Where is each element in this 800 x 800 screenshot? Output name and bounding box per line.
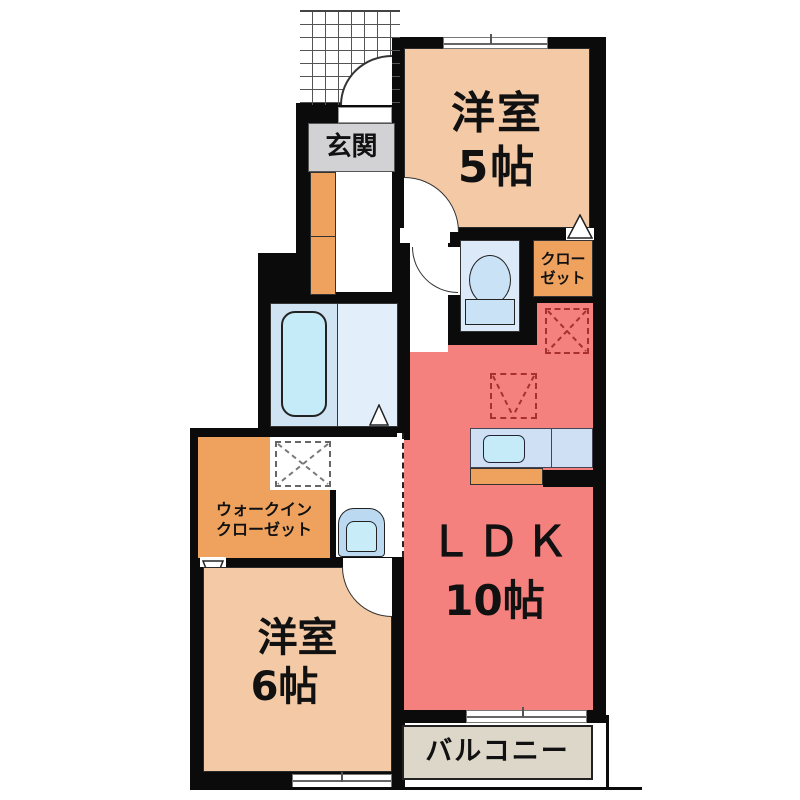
closet-folding-door-icon <box>567 214 593 239</box>
ldk-label: ＬＤＫ 10帖 <box>410 516 593 626</box>
ldk-balcony-window <box>466 710 587 723</box>
toilet-tank <box>465 299 515 325</box>
kitchen-lower-cabinet <box>470 468 543 485</box>
closet-label: クロー ゼット <box>540 250 585 288</box>
room-west6-window <box>292 774 392 788</box>
kitchen-sink-icon <box>483 435 525 463</box>
washing-machine-space <box>275 441 331 487</box>
genkan-label: 玄関 <box>325 132 377 164</box>
ldk-area-west-upper <box>410 352 450 442</box>
toilet-room <box>460 240 520 332</box>
floor-plan: 洋室 5帖 玄関 クロー ゼット ＬＤＫ 10帖 <box>0 0 800 800</box>
genkan-area: 玄関 <box>308 123 395 172</box>
kitchen-counter <box>470 428 593 468</box>
room-west6-label: 洋室 6帖 <box>204 614 391 712</box>
balcony-label: バルコニー <box>425 736 569 769</box>
room-west5-window <box>443 37 548 49</box>
washbasin-icon <box>338 508 385 557</box>
walkin-closet-label: ウォークイン クローゼット <box>198 500 330 540</box>
closet: クロー ゼット <box>533 240 593 297</box>
entrance-door-sill <box>338 107 392 123</box>
boundary-line-bottom <box>190 787 642 790</box>
toilet-icon <box>469 255 511 305</box>
washroom-sliding-door <box>397 433 404 557</box>
room-west5-label: 洋室 5帖 <box>405 87 589 194</box>
bath-folding-door-icon <box>369 404 389 426</box>
shoe-cabinet <box>310 172 336 295</box>
balcony: バルコニー <box>402 725 593 780</box>
bathtub-icon <box>281 311 327 417</box>
hallway <box>336 172 392 292</box>
refrigerator-space <box>545 308 589 354</box>
cupboard-space <box>490 373 537 419</box>
kitchen-wall-nub <box>543 470 606 487</box>
boundary-line-right <box>606 715 609 788</box>
